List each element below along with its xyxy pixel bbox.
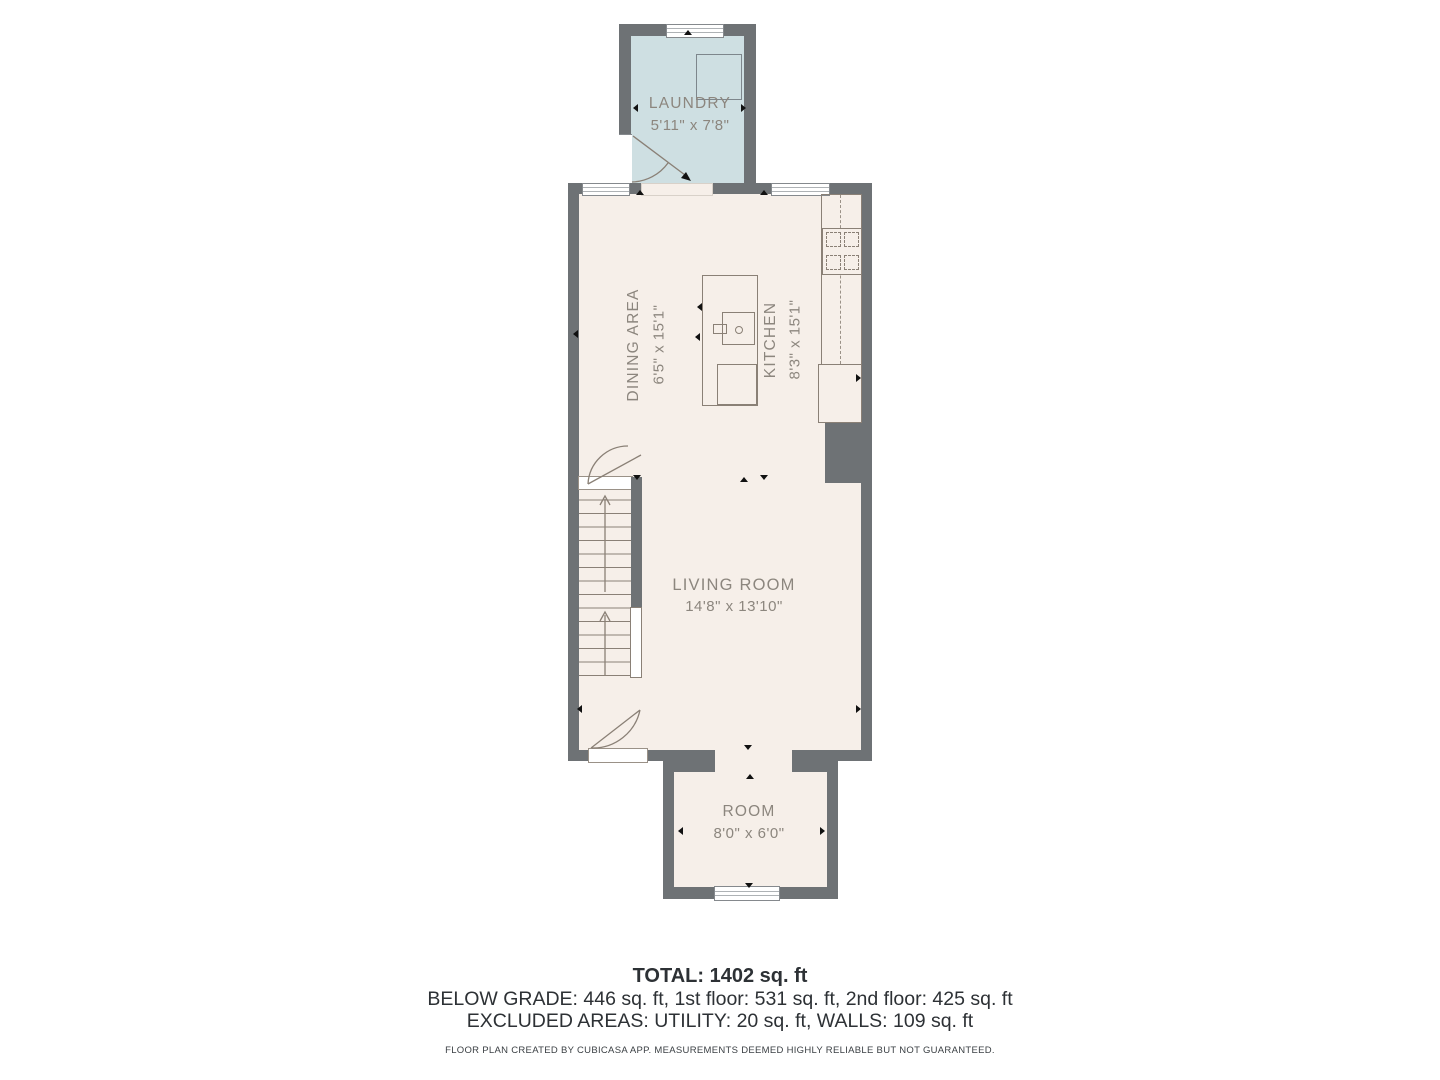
burner-icon	[826, 255, 841, 270]
opening-marker-icon	[577, 705, 582, 713]
opening-marker-icon	[744, 745, 752, 750]
burner-icon	[844, 232, 859, 247]
island-cabinet	[717, 364, 757, 405]
stove-icon	[822, 228, 862, 275]
opening-marker-icon	[573, 330, 578, 338]
laundry-dims: 5'11" x 7'8"	[620, 117, 760, 134]
opening-marker-icon	[745, 883, 753, 888]
opening-marker-icon	[760, 475, 768, 480]
laundry-label: LAUNDRY	[620, 95, 760, 113]
kitchen-label: KITCHEN	[762, 260, 780, 420]
excluded-areas-text: EXCLUDED AREAS: UTILITY: 20 sq. ft, WALL…	[0, 1010, 1440, 1033]
washer-icon	[696, 54, 742, 100]
room-dims: 8'0" x 6'0"	[649, 825, 849, 842]
stairs-icon	[579, 487, 631, 676]
opening-marker-icon	[633, 475, 641, 480]
living-room-opening	[715, 749, 792, 773]
opening-marker-icon	[684, 30, 692, 35]
dining-window-icon	[582, 183, 630, 196]
burner-icon	[844, 255, 859, 270]
opening-marker-icon	[636, 190, 644, 195]
drain-icon	[735, 326, 743, 334]
disclaimer-text: FLOOR PLAN CREATED BY CUBICASA APP. MEAS…	[0, 1045, 1440, 1056]
laundry-dining-opening	[641, 183, 713, 196]
opening-marker-icon	[856, 705, 861, 713]
opening-marker-icon	[760, 190, 768, 195]
kitchen-counter	[821, 194, 862, 367]
laundry-door-gap	[619, 134, 632, 185]
refrigerator-icon	[818, 364, 862, 423]
wall-recess-block	[825, 423, 872, 483]
kitchen-dims: 8'3" x 15'1"	[787, 260, 804, 420]
burner-icon	[826, 232, 841, 247]
living-room-dims: 14'8" x 13'10"	[634, 598, 834, 615]
opening-marker-icon	[740, 477, 748, 482]
faucet-icon	[713, 324, 727, 334]
living-door-threshold	[588, 748, 648, 763]
total-area-text: TOTAL: 1402 sq. ft	[0, 965, 1440, 988]
room-label: ROOM	[649, 803, 849, 821]
opening-marker-icon	[697, 303, 702, 311]
opening-marker-icon	[695, 333, 700, 341]
stairs-railing	[630, 607, 642, 678]
opening-marker-icon	[746, 774, 754, 779]
floor-areas-text: BELOW GRADE: 446 sq. ft, 1st floor: 531 …	[0, 988, 1440, 1011]
dining-label: DINING AREA	[625, 265, 643, 425]
floor-plan-canvas: LAUNDRY 5'11" x 7'8" DINING AREA 6'5" x …	[0, 0, 1440, 1080]
laundry-window-icon	[666, 24, 724, 38]
opening-marker-icon	[856, 374, 861, 382]
counter-dashed-line	[840, 195, 841, 364]
room-window-icon	[714, 886, 780, 901]
living-room-label: LIVING ROOM	[634, 576, 834, 595]
dining-dims: 6'5" x 15'1"	[651, 265, 668, 425]
